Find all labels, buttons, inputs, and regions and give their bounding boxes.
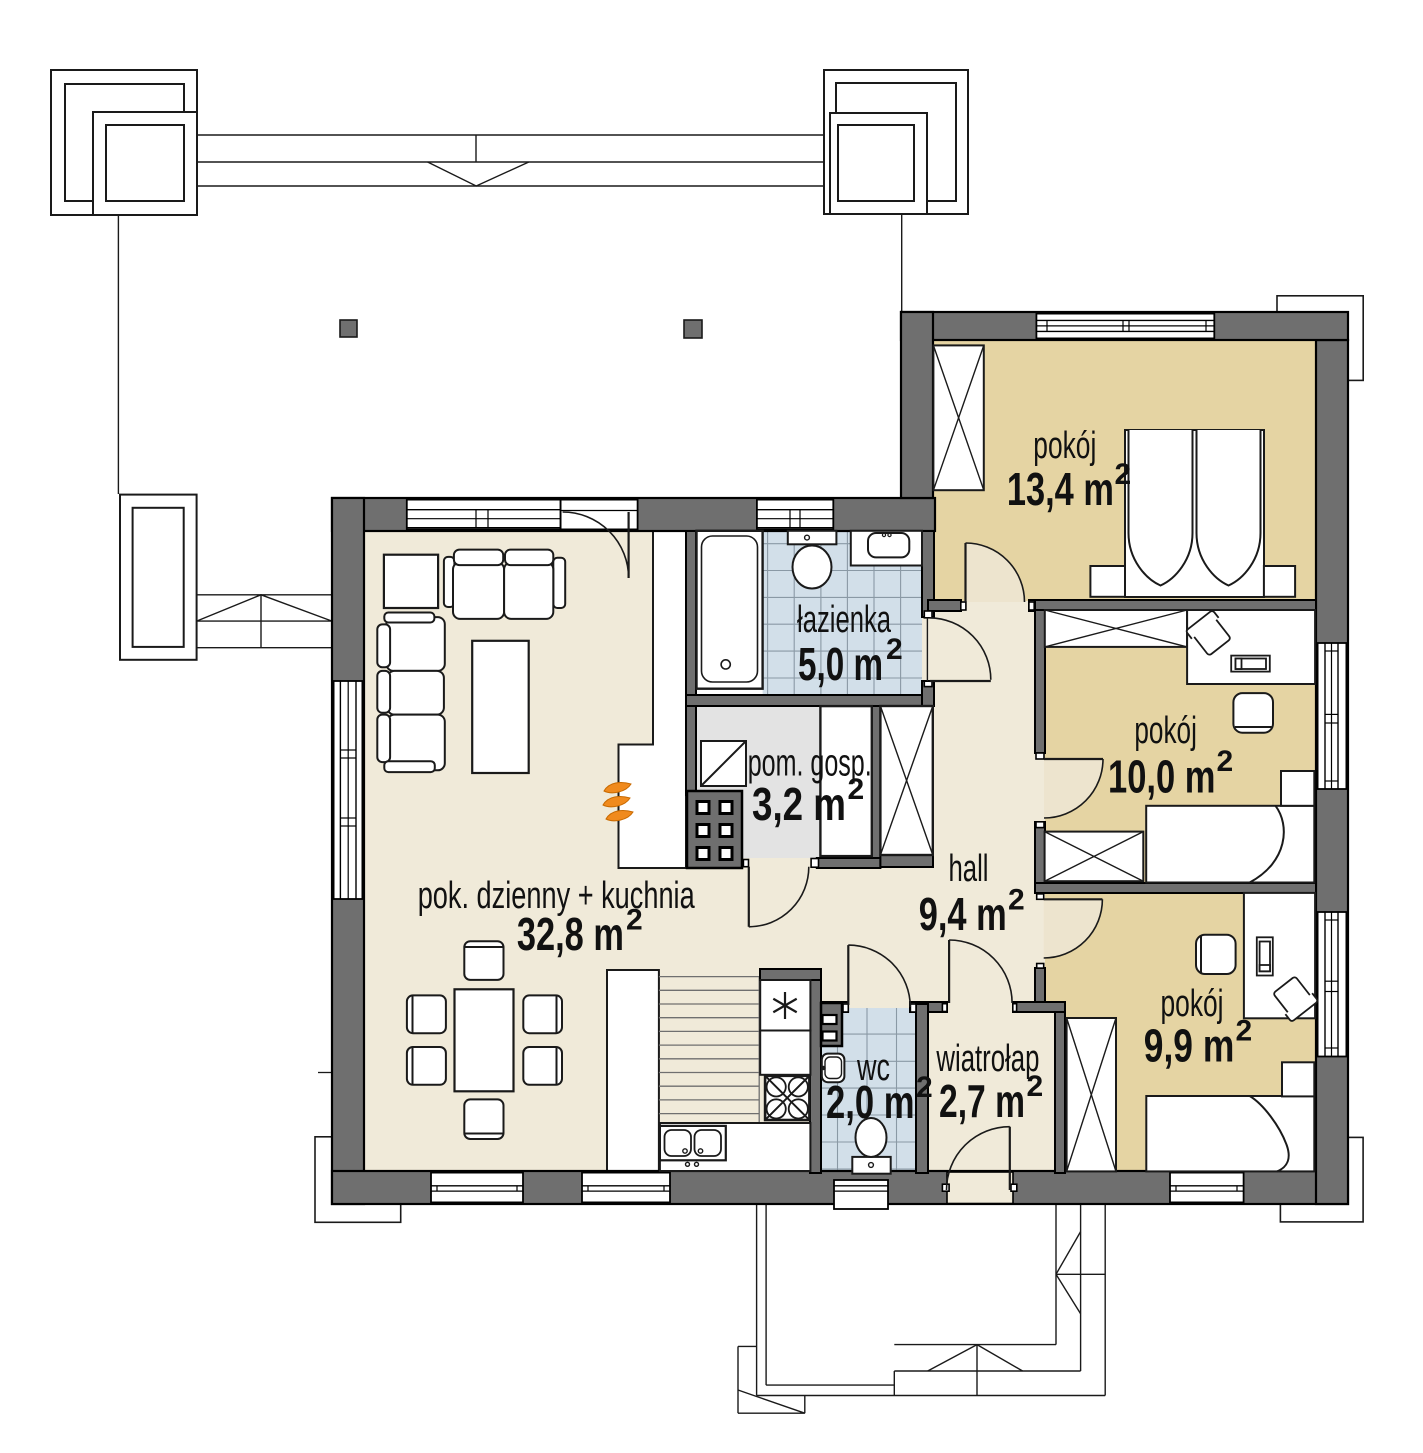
svg-text:2: 2 [1115, 458, 1132, 491]
svg-text:2: 2 [626, 904, 643, 937]
svg-text:łazienka: łazienka [797, 599, 892, 641]
svg-text:2,7 m: 2,7 m [939, 1075, 1025, 1127]
svg-text:3,2 m: 3,2 m [752, 778, 846, 830]
svg-text:2: 2 [1008, 884, 1025, 917]
svg-text:32,8 m: 32,8 m [517, 908, 624, 960]
svg-text:9,4 m: 9,4 m [919, 888, 1007, 940]
svg-text:pokój: pokój [1033, 425, 1096, 467]
svg-text:2,0 m: 2,0 m [826, 1076, 915, 1128]
svg-text:hall: hall [949, 848, 989, 890]
svg-text:2: 2 [1236, 1015, 1253, 1048]
svg-text:2: 2 [848, 773, 865, 806]
svg-text:2: 2 [1027, 1070, 1044, 1103]
svg-text:5,0 m: 5,0 m [798, 638, 883, 690]
svg-text:2: 2 [886, 633, 903, 666]
svg-text:wiatrołap: wiatrołap [936, 1038, 1040, 1080]
svg-text:13,4 m: 13,4 m [1007, 463, 1114, 515]
svg-text:2: 2 [916, 1071, 933, 1104]
svg-text:10,0 m: 10,0 m [1108, 751, 1216, 803]
svg-text:9,9 m: 9,9 m [1144, 1020, 1235, 1072]
svg-text:2: 2 [1217, 745, 1234, 778]
svg-text:pokój: pokój [1134, 710, 1197, 752]
